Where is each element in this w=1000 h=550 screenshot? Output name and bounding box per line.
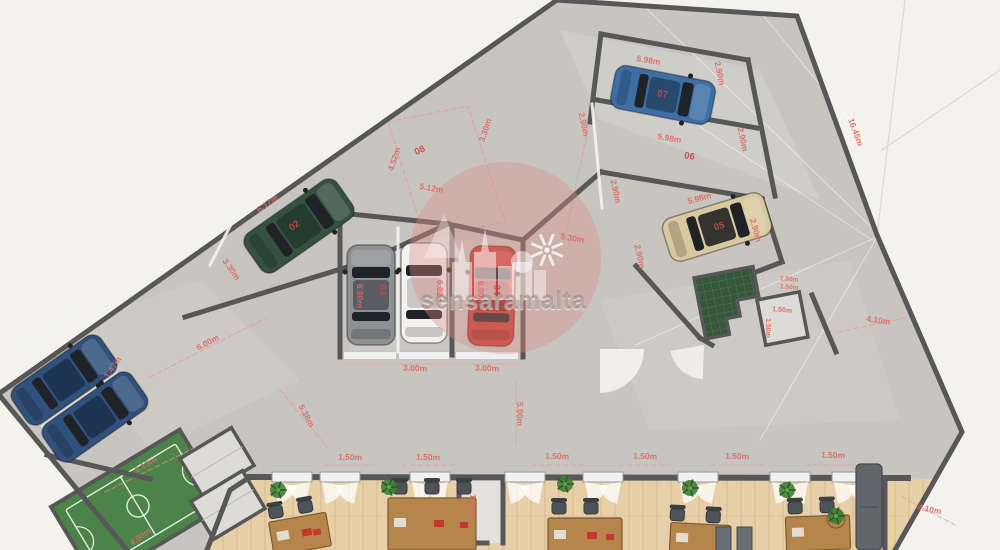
dimension-label: 6.02m [435, 280, 445, 305]
spot-number-label: 06 [683, 150, 695, 163]
dimension-label: 1.50m [468, 494, 478, 519]
dimension-label: 6.00m [476, 281, 486, 306]
chair [705, 506, 722, 523]
dimension-label: 3.00m [475, 363, 500, 374]
dimension-label: 1.50m [545, 451, 570, 462]
dimension-label: 1.50m [633, 451, 658, 462]
window [272, 472, 312, 482]
dimension-label: 1.50m [764, 318, 771, 338]
dimension-label: 5.00m [515, 402, 525, 427]
chair [424, 478, 440, 494]
cabinet [716, 527, 731, 550]
spot-number-label: 03 [377, 285, 388, 296]
spot-number-label: 07 [656, 88, 668, 101]
window [505, 472, 545, 482]
dimension-label: 6.00m [355, 284, 365, 309]
window [583, 472, 623, 482]
desk-cluster [388, 478, 476, 550]
dimension-label: 1.50m [338, 452, 363, 463]
cabinet [737, 527, 752, 550]
window [770, 472, 810, 482]
chair [583, 498, 599, 514]
dimension-label: 1.50m [725, 451, 750, 462]
chair [787, 498, 804, 515]
chair [551, 498, 567, 514]
floor-plan-canvas: 5.98m2.90m075.98m062.90m5.98m052.90m2.90… [0, 0, 1000, 550]
dimension-label: 1.50m [821, 450, 846, 461]
couch [856, 464, 882, 550]
dimension-label: 1.50m [416, 452, 441, 463]
gray-car-03 [343, 245, 400, 345]
window [320, 472, 360, 482]
red-desk-item [434, 520, 444, 527]
red-desk-item [587, 532, 597, 539]
floor-plan-svg: 5.98m2.90m075.98m062.90m5.98m052.90m2.90… [0, 0, 1000, 550]
spot-number-label: 04 [491, 285, 502, 296]
chair [456, 478, 472, 494]
chair [669, 504, 686, 521]
dimension-label: 3.00m [403, 363, 428, 374]
window [678, 472, 718, 482]
